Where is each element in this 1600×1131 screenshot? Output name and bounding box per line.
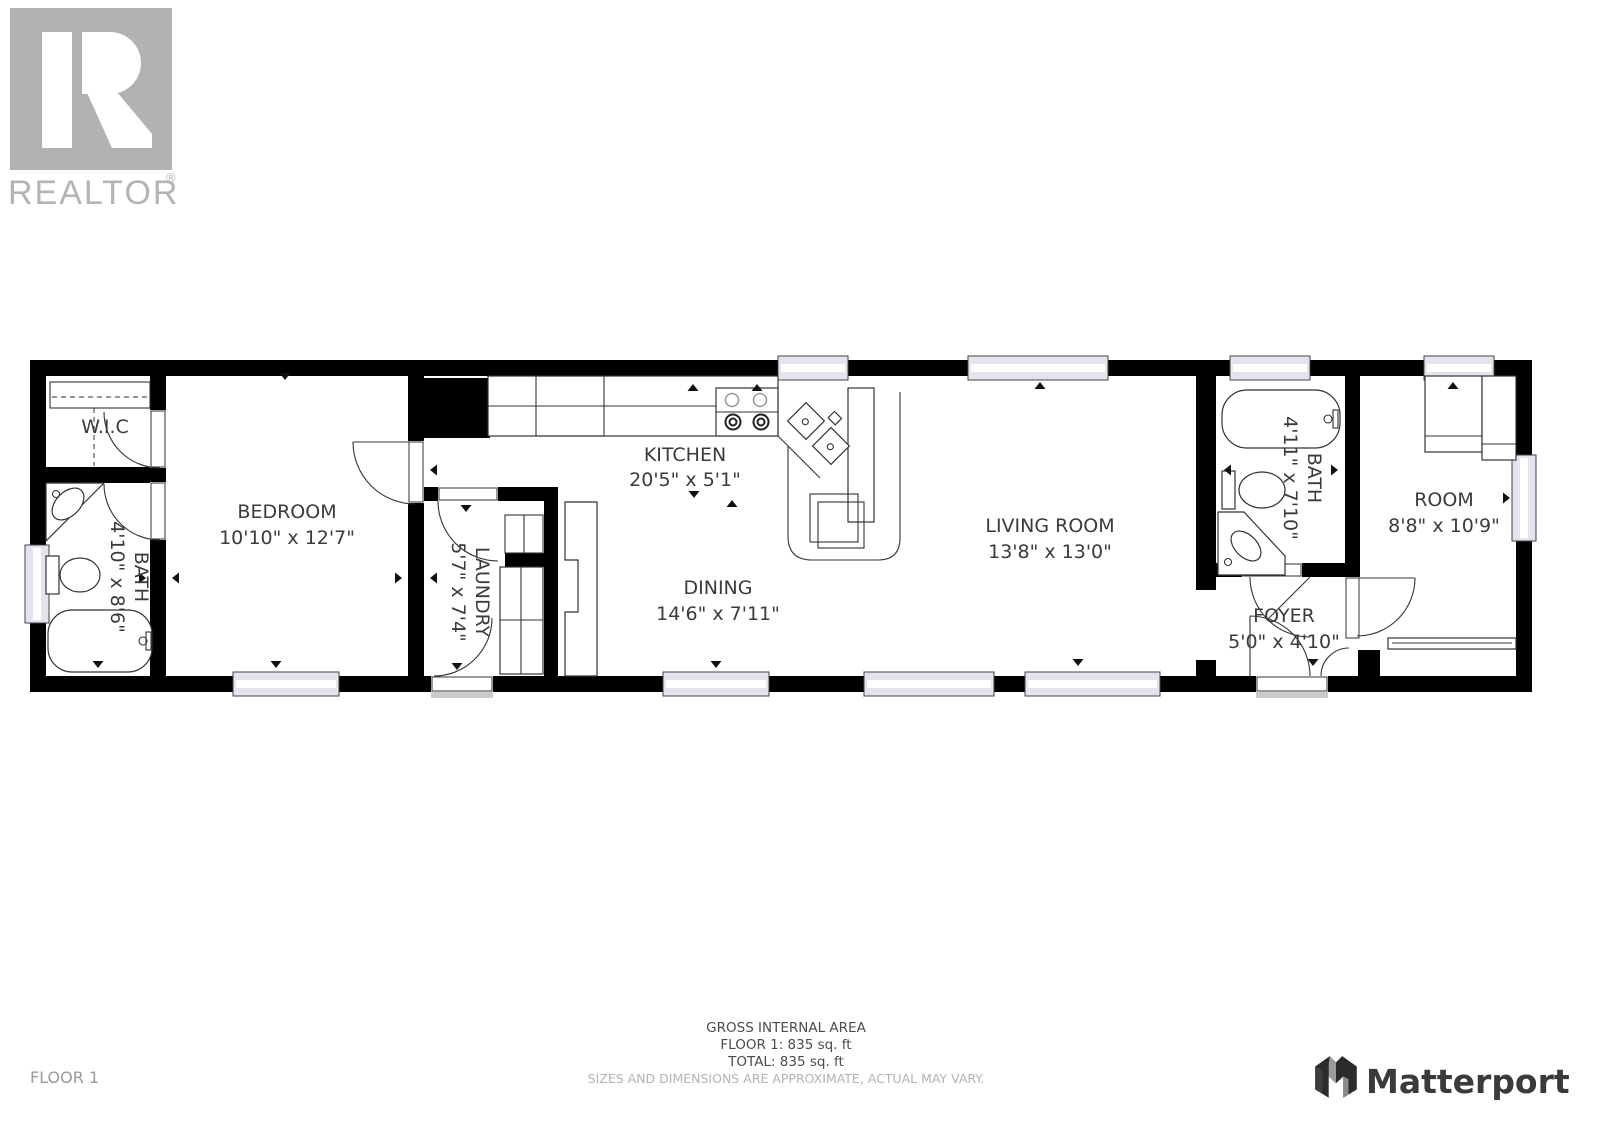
window-bedroom-bottom [233,672,339,696]
label-living: LIVING ROOM [985,515,1114,537]
matterport-m-icon [1315,1056,1357,1098]
bath1-door [151,483,165,539]
entry-door [1257,677,1327,691]
footer: GROSS INTERNAL AREA FLOOR 1: 835 sq. ft … [30,1020,1570,1101]
realtor-logo: REALTOR ® [8,8,179,212]
svg-text:BATH: BATH [130,552,152,602]
realtor-wordmark: REALTOR [8,174,179,212]
window-bath2-top [1230,356,1310,380]
floor1-area: FLOOR 1: 835 sq. ft [720,1037,851,1053]
window-living-bottom-1 [864,672,994,696]
disclaimer: SIZES AND DIMENSIONS ARE APPROXIMATE, AC… [588,1071,985,1086]
matterport-wordmark: Matterport [1366,1062,1570,1101]
label-living-dims: 13'8" x 13'0" [988,541,1112,563]
label-foyer-dims: 5'0" x 4'10" [1228,631,1340,653]
label-bedroom: BEDROOM [237,501,336,523]
window-dining-bottom [663,672,769,696]
label-kitchen-dims: 20'5" x 5'1" [629,469,741,491]
label-dining: DINING [684,577,753,599]
window-living-bottom-2 [1025,672,1160,696]
svg-text:BATH: BATH [1303,453,1325,503]
window-room-right [1512,455,1536,541]
realtor-r-stem [42,32,72,148]
label-foyer: FOYER [1253,605,1315,627]
gross-area-title: GROSS INTERNAL AREA [706,1020,866,1036]
window-kitchen-top [778,356,848,380]
laundry-exterior-step [431,692,493,698]
label-dining-dims: 14'6" x 7'11" [656,603,780,625]
total-area: TOTAL: 835 sq. ft [727,1054,844,1070]
bath1-toilet [60,558,100,592]
svg-text:LAUNDRY: LAUNDRY [471,547,493,638]
laundry-door [439,488,497,500]
label-kitchen: KITCHEN [644,444,726,466]
label-bedroom-dims: 10'10" x 12'7" [219,527,355,549]
room-door [1346,578,1359,638]
entry-step [1256,692,1328,698]
label-room: ROOM [1414,489,1474,511]
svg-text:4'10" x 8'6": 4'10" x 8'6" [106,521,128,633]
bath2-toilet [1239,472,1285,508]
svg-text:4'11" x 7'10": 4'11" x 7'10" [1279,416,1301,540]
floorplan-drawing: W.I.C BATH 4'10" x 8'6" BEDROOM 10'10" x… [25,356,1536,698]
matterport-logo: Matterport [1315,1056,1570,1101]
wic-door [151,411,165,467]
floor-selector-label: FLOOR 1 [30,1068,99,1087]
fridge [424,378,490,438]
svg-text:5'7" x 7'4": 5'7" x 7'4" [447,542,469,642]
floorplan-canvas: REALTOR ® [0,0,1600,1131]
bath2-toilet-tank [1222,471,1235,509]
realtor-registered-icon: ® [166,170,176,185]
bath1-toilet-tank [46,556,59,594]
bedroom-door [409,442,423,502]
laundry-exterior-door [432,677,492,691]
label-wic: W.I.C [81,416,129,438]
label-room-dims: 8'8" x 10'9" [1388,515,1500,537]
floorplan-page: REALTOR ® [0,0,1600,1131]
window-living-top [968,356,1108,380]
